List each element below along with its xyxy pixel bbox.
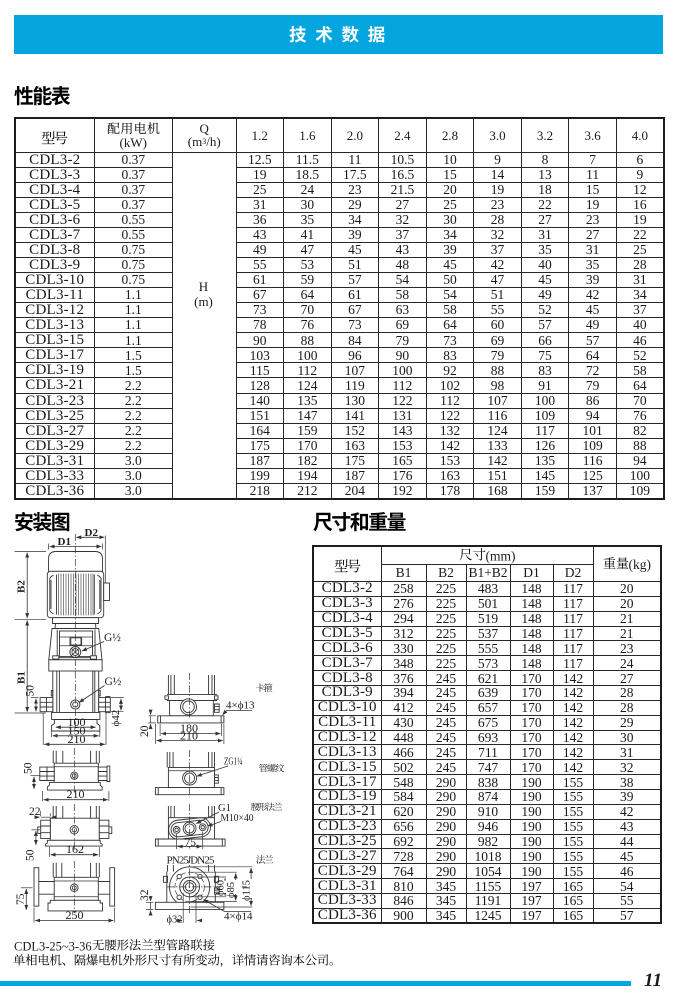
svg-text:PN25/DN25: PN25/DN25 bbox=[167, 855, 216, 867]
svg-text:G½: G½ bbox=[104, 632, 121, 644]
svg-text:4×ϕ14: 4×ϕ14 bbox=[224, 911, 253, 923]
svg-text:250: 250 bbox=[66, 908, 84, 922]
svg-text:75: 75 bbox=[185, 837, 197, 849]
svg-text:D2: D2 bbox=[85, 528, 99, 539]
svg-text:ZG1¼: ZG1¼ bbox=[224, 757, 243, 768]
svg-text:210: 210 bbox=[180, 728, 198, 742]
svg-text:210: 210 bbox=[68, 732, 86, 746]
svg-text:162: 162 bbox=[66, 842, 84, 856]
svg-text:50: 50 bbox=[24, 849, 36, 861]
svg-text:ϕ60: ϕ60 bbox=[215, 880, 226, 896]
svg-text:75: 75 bbox=[15, 893, 27, 905]
svg-text:210: 210 bbox=[67, 787, 85, 801]
svg-text:22: 22 bbox=[29, 806, 41, 818]
svg-text:ϕ42: ϕ42 bbox=[110, 710, 122, 727]
svg-text:G½: G½ bbox=[105, 676, 122, 688]
svg-text:ϕ115: ϕ115 bbox=[241, 880, 252, 901]
svg-text:ϕ32: ϕ32 bbox=[167, 915, 183, 926]
svg-text:50: 50 bbox=[23, 762, 35, 774]
svg-text:50: 50 bbox=[25, 685, 37, 697]
svg-text:4×ϕ13: 4×ϕ13 bbox=[226, 700, 255, 712]
svg-text:32: 32 bbox=[139, 889, 151, 901]
svg-text:D1: D1 bbox=[58, 536, 71, 548]
svg-text:20: 20 bbox=[139, 725, 151, 737]
svg-text:B1: B1 bbox=[16, 671, 28, 684]
svg-text:B2: B2 bbox=[16, 580, 28, 593]
svg-text:ϕ85: ϕ85 bbox=[226, 882, 237, 898]
svg-text:M10×40: M10×40 bbox=[221, 813, 254, 824]
